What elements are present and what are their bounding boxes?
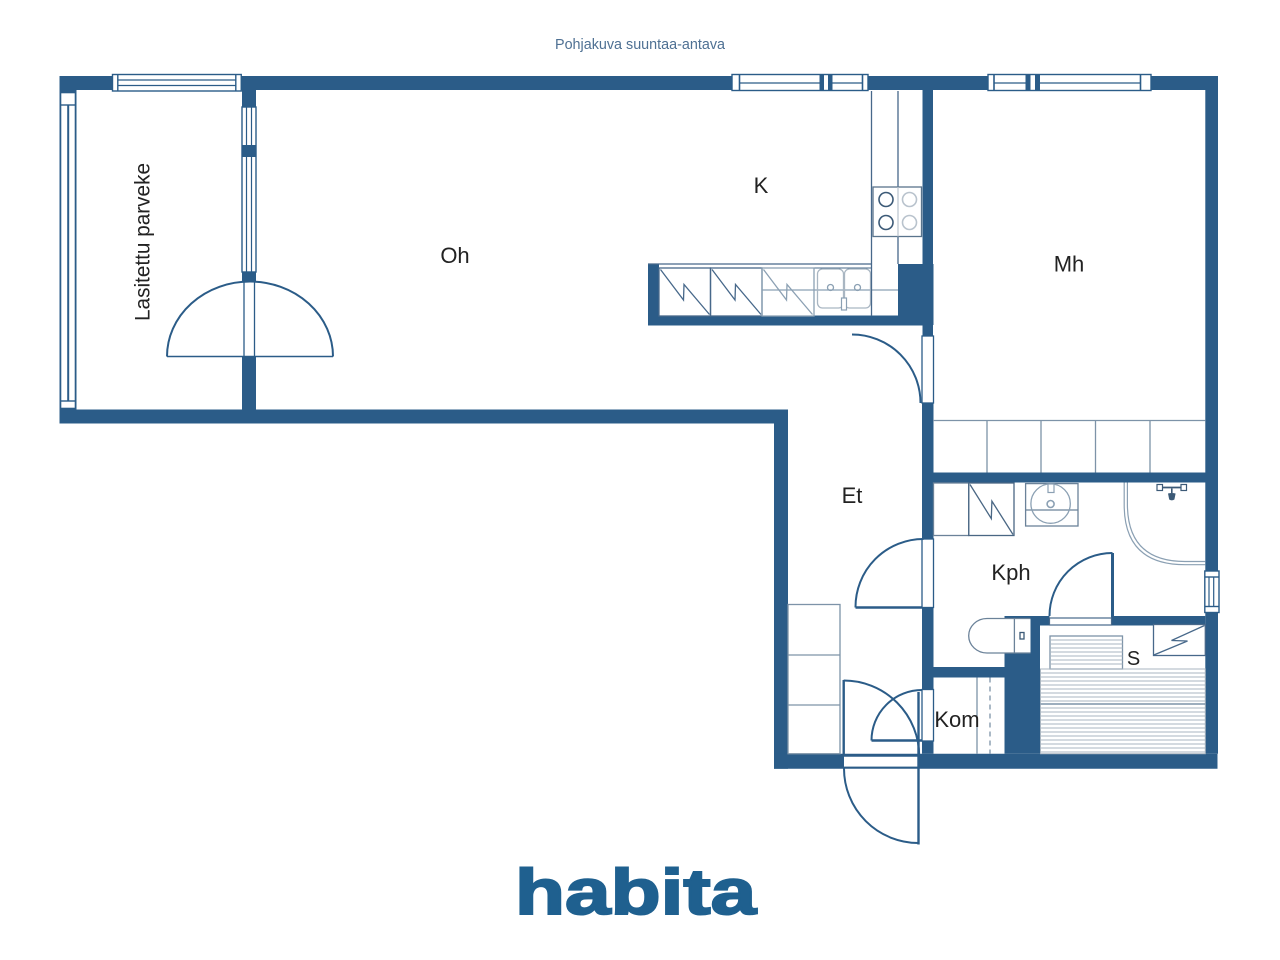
svg-text:Mh: Mh (1054, 252, 1085, 277)
svg-text:Et: Et (842, 483, 863, 508)
svg-text:habita: habita (515, 856, 757, 928)
svg-text:Pohjakuva suuntaa-antava: Pohjakuva suuntaa-antava (555, 36, 726, 53)
svg-text:Oh: Oh (440, 243, 469, 268)
svg-text:Kph: Kph (991, 560, 1030, 585)
svg-text:K: K (754, 173, 769, 198)
svg-text:Kom: Kom (934, 707, 979, 732)
svg-text:Lasitettu parveke: Lasitettu parveke (132, 163, 155, 321)
svg-text:S: S (1127, 648, 1140, 670)
